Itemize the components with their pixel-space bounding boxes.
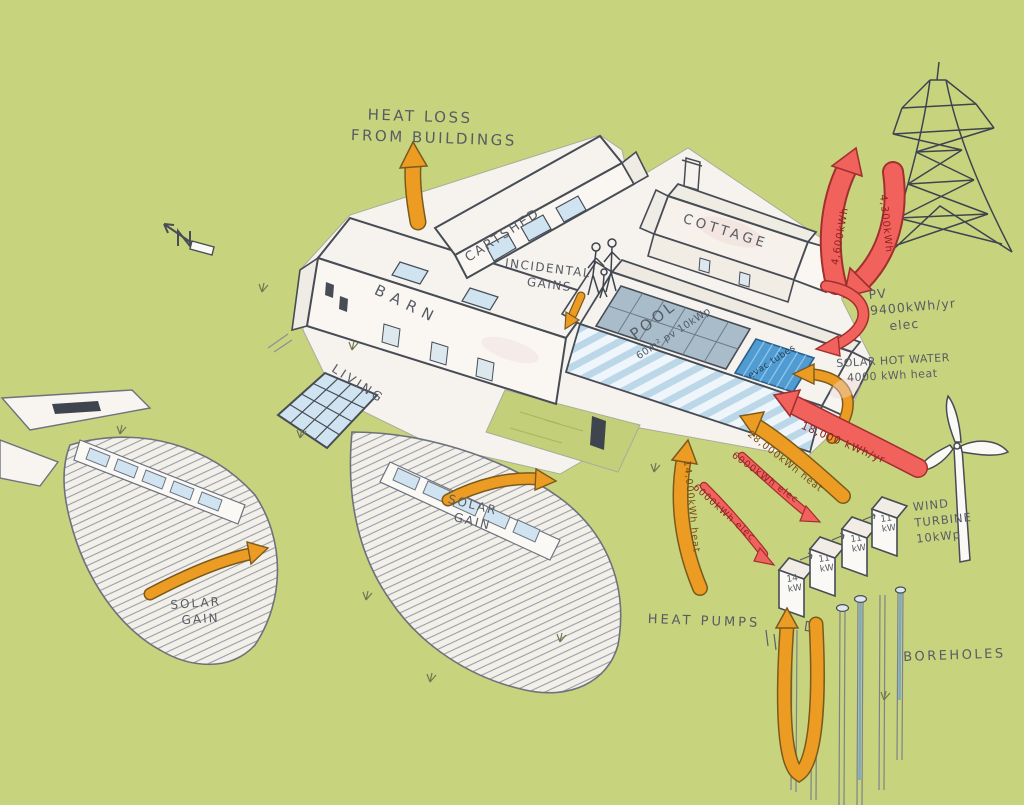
wedge-roof-2 bbox=[0, 440, 58, 486]
solar-hot-water-label: SOLAR HOT WATER 4000 kWh heat bbox=[836, 351, 951, 387]
earth-sheltered-wing-south bbox=[350, 432, 620, 693]
energy-sketch-canvas: HEAT LOSS FROM BUILDINGS BARN CARTSHED C… bbox=[0, 0, 1024, 805]
hp2-unit: kW bbox=[819, 564, 834, 576]
hp-rating-1: 14 kW bbox=[786, 574, 803, 596]
hp-rating-4: 11 kW bbox=[880, 514, 897, 536]
heat-pumps-label: HEAT PUMPS bbox=[647, 611, 760, 633]
hp-rating-2: 11 kW bbox=[818, 554, 835, 576]
heat-loss-label: HEAT LOSS FROM BUILDINGS bbox=[351, 104, 518, 152]
solar-gain-west-line2: GAIN bbox=[181, 610, 223, 628]
hp1-unit: kW bbox=[787, 584, 802, 596]
wind-turbine-label: WIND TURBINE 10kWp bbox=[912, 493, 974, 547]
electricity-pylon-icon bbox=[884, 62, 1012, 258]
earth-sheltered-wing-west bbox=[0, 390, 278, 664]
north-arrow-icon bbox=[164, 224, 214, 255]
hp3-unit: kW bbox=[851, 544, 866, 556]
door bbox=[590, 416, 606, 450]
solar-gain-label-west: SOLAR GAIN bbox=[170, 594, 223, 629]
hp4-unit: kW bbox=[881, 524, 896, 536]
boreholes-label: BOREHOLES bbox=[903, 645, 1006, 667]
hp-rating-3: 11 kW bbox=[850, 534, 867, 556]
pv-label: PV 9400kWh/yr elec bbox=[868, 279, 958, 335]
